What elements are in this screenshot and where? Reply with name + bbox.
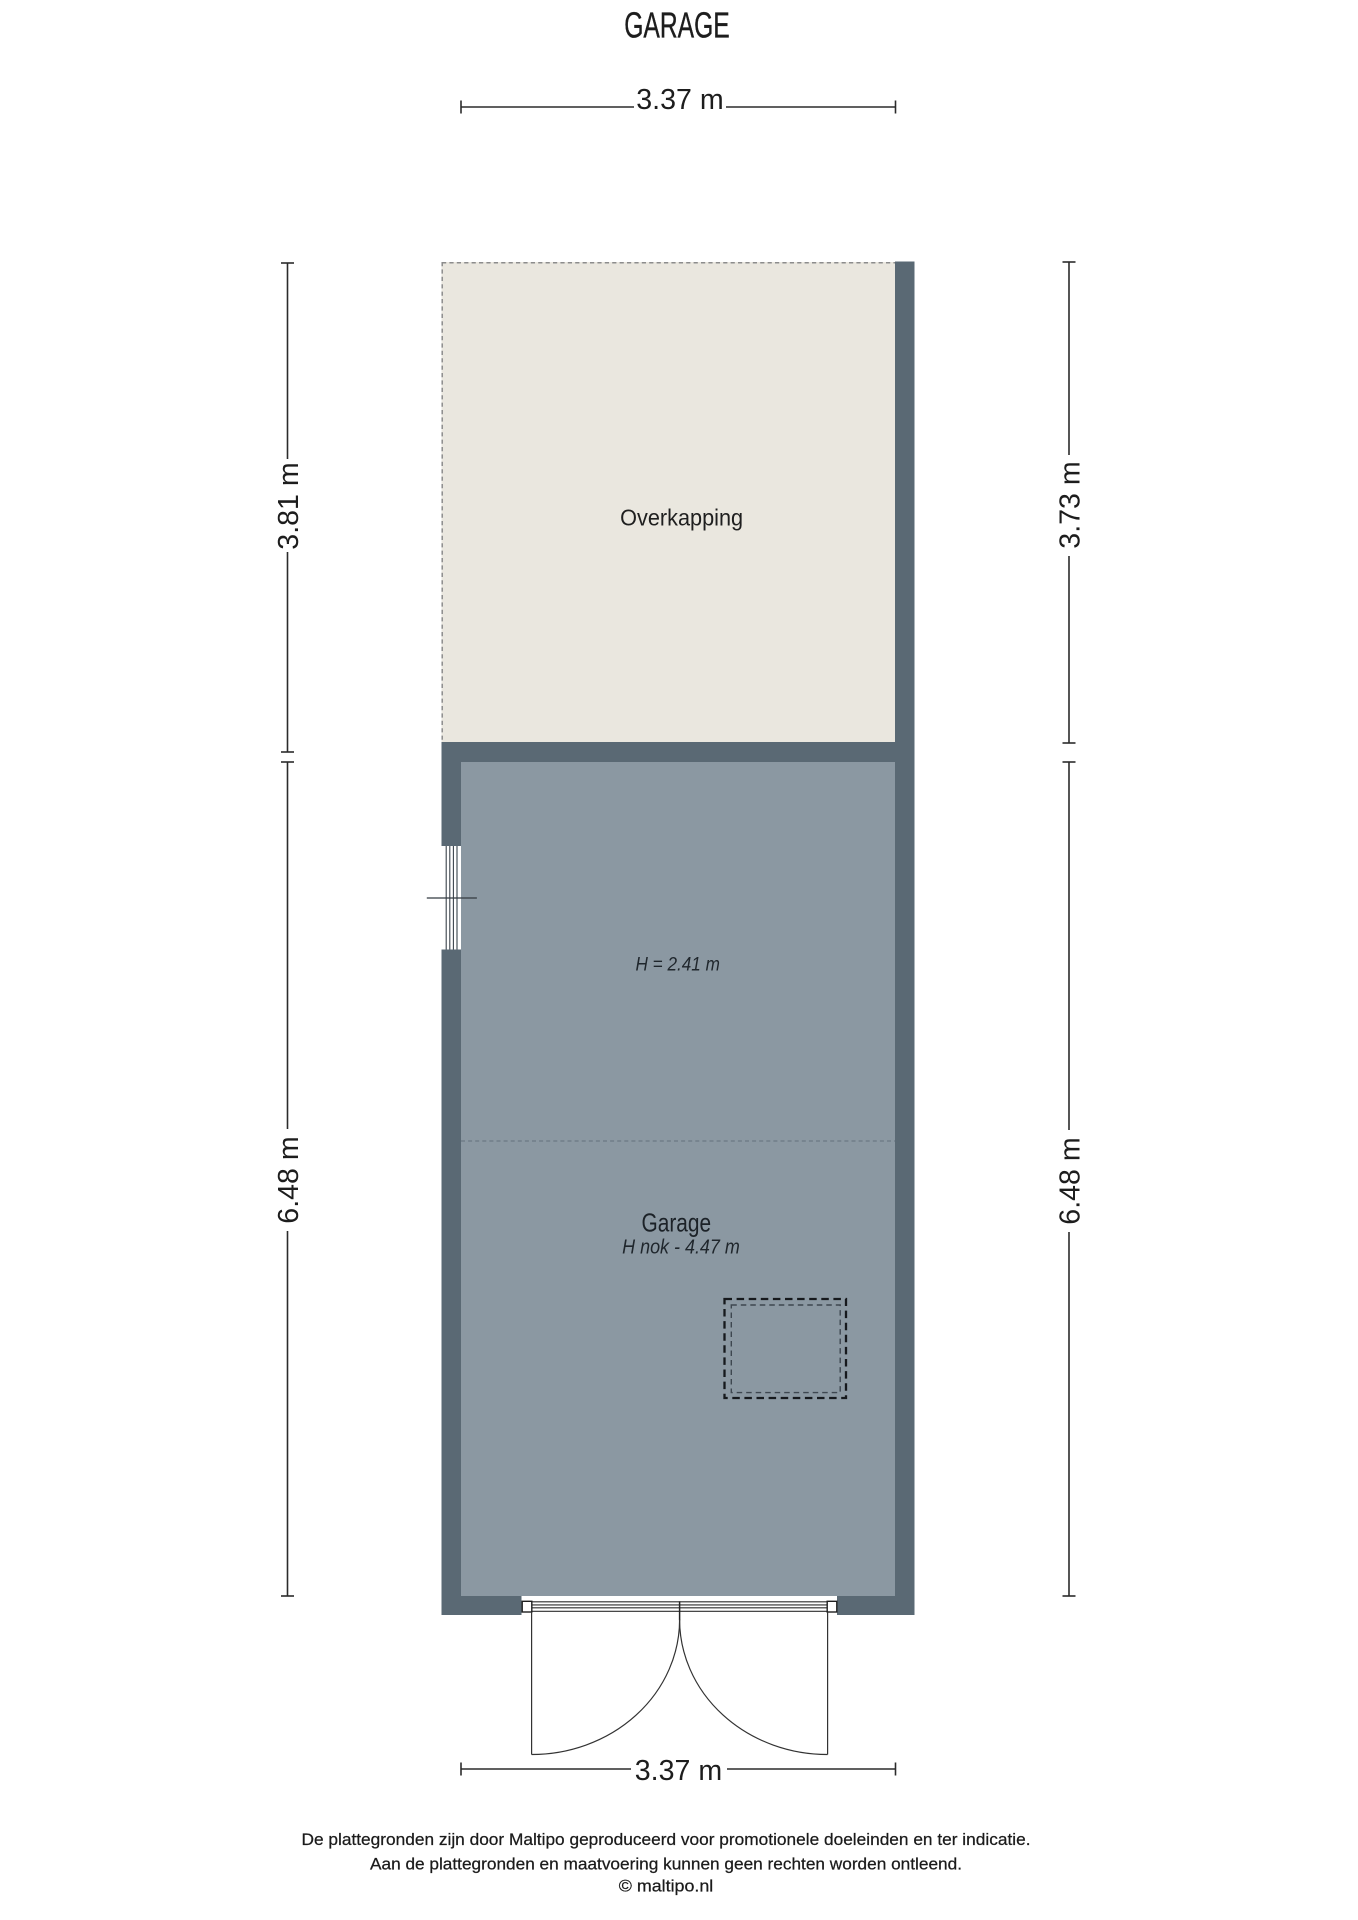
svg-text:H = 2.41 m: H = 2.41 m [636,954,720,976]
svg-text:Aan de plattegronden en maatvo: Aan de plattegronden en maatvoering kunn… [370,1855,962,1874]
svg-text:H nok - 4.47 m: H nok - 4.47 m [622,1237,740,1259]
svg-text:3.73 m: 3.73 m [1055,461,1087,548]
svg-text:3.81 m: 3.81 m [273,462,305,549]
svg-text:Overkapping: Overkapping [620,505,743,531]
svg-text:© maltipo.nl: © maltipo.nl [619,1877,714,1896]
svg-text:Garage: Garage [642,1208,712,1238]
svg-text:GARAGE: GARAGE [624,5,730,46]
svg-text:3.37 m: 3.37 m [635,1755,722,1787]
svg-text:3.37 m: 3.37 m [636,84,723,116]
svg-text:De plattegronden zijn door Mal: De plattegronden zijn door Maltipo gepro… [302,1830,1031,1849]
svg-text:6.48 m: 6.48 m [273,1136,305,1223]
svg-text:6.48 m: 6.48 m [1055,1137,1087,1224]
